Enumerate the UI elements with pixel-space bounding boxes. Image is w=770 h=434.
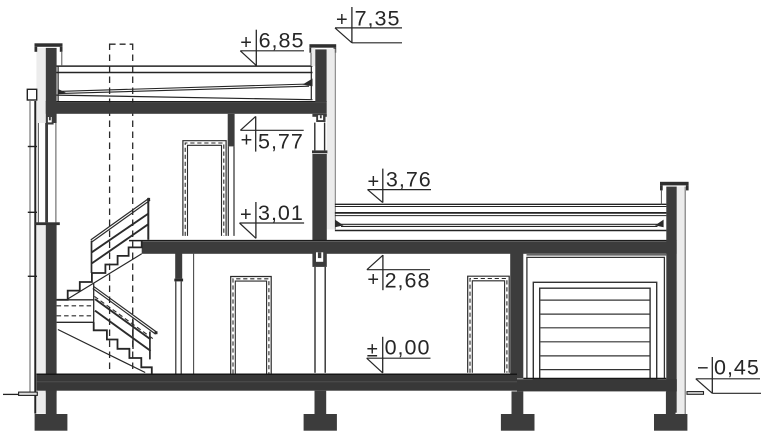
- svg-text:6,85: 6,85: [259, 29, 305, 53]
- svg-text:3,01: 3,01: [258, 201, 304, 225]
- svg-text:0,45: 0,45: [714, 356, 760, 380]
- svg-text:−: −: [697, 358, 709, 380]
- svg-text:+: +: [367, 269, 379, 291]
- svg-text:+: +: [368, 171, 380, 193]
- svg-text:+: +: [336, 9, 348, 31]
- svg-text:7,35: 7,35: [355, 6, 401, 30]
- svg-text:2,68: 2,68: [385, 268, 431, 292]
- svg-text:5,77: 5,77: [258, 129, 304, 153]
- svg-text:±: ±: [367, 339, 378, 361]
- svg-text:+: +: [240, 32, 252, 54]
- svg-text:+: +: [241, 130, 253, 152]
- svg-text:0,00: 0,00: [385, 336, 431, 360]
- svg-text:+: +: [240, 204, 252, 226]
- svg-text:3,76: 3,76: [386, 167, 432, 191]
